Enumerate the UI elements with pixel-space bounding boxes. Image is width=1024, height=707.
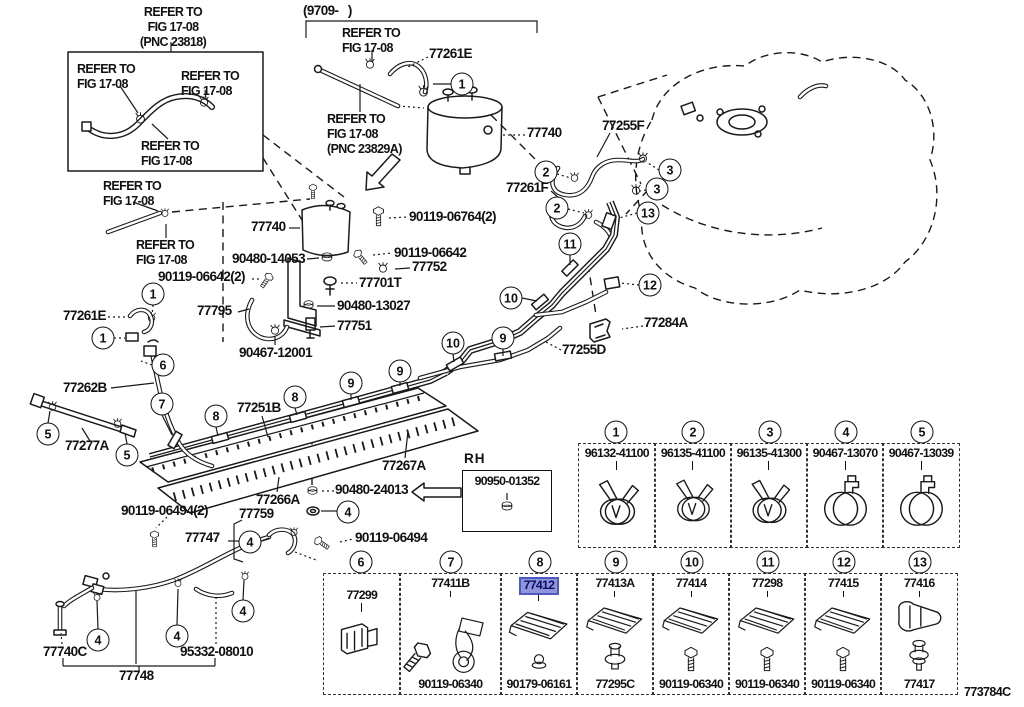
leader [361, 603, 362, 612]
legend-num-11[interactable]: 11 [757, 551, 780, 574]
part-number[interactable]: 77414 [676, 577, 707, 591]
legend-num-9[interactable]: 9 [605, 551, 628, 574]
legend-num-3[interactable]: 3 [759, 421, 782, 444]
legend-table-row1: 96132-41100 96135-41100 96135-41300 9046… [578, 443, 960, 548]
note-refer-5: REFER TO FIG 17-08 [136, 238, 194, 268]
part-label-77251b[interactable]: 77251B [237, 401, 281, 415]
part-number[interactable]: 90119-06340 [811, 678, 875, 692]
part-label-77284a[interactable]: 77284A [644, 316, 688, 330]
part-number[interactable]: 77299 [346, 589, 377, 603]
nut-icon [530, 647, 548, 679]
bracket-arm-icon [429, 610, 495, 678]
callout-13[interactable]: 13 [637, 202, 660, 225]
part-label-77262b[interactable]: 77262B [63, 381, 107, 395]
pipe-clamp-icon [809, 597, 877, 641]
part-label-90480-14053[interactable]: 90480-14053 [232, 252, 305, 266]
part-label-77740-mid[interactable]: 77740 [251, 220, 286, 234]
part-label-90119-06642[interactable]: 90119-06642 [394, 246, 466, 260]
part-number[interactable]: 77298 [752, 577, 783, 591]
callout-8[interactable]: 8 [205, 405, 228, 428]
part-number-highlighted[interactable]: 77412 [519, 577, 560, 595]
legend-cell-1[interactable]: 96132-41100 [578, 443, 656, 548]
part-label-95332-08010[interactable]: 95332-08010 [180, 645, 253, 659]
part-label-77748[interactable]: 77748 [119, 669, 154, 683]
bolt-icon [683, 641, 699, 679]
leader [845, 461, 846, 470]
part-label-77267a[interactable]: 77267A [382, 459, 426, 473]
legend-cell-2[interactable]: 96135-41100 [654, 443, 732, 548]
part-number[interactable]: 77416 [904, 577, 935, 591]
part-label-77747[interactable]: 77747 [185, 531, 220, 545]
fuel-tank-outline [636, 53, 937, 304]
part-number[interactable]: 77411B [431, 577, 469, 591]
part-number[interactable]: 77413A [596, 577, 635, 591]
callout-4[interactable]: 4 [87, 629, 110, 652]
legend-cell-8[interactable]: 77412 90179-06161 [500, 573, 578, 695]
callout-9[interactable]: 9 [389, 360, 412, 383]
legend-num-10[interactable]: 10 [681, 551, 704, 574]
pipe-clamp-icon [733, 597, 801, 641]
rh-label: RH [464, 452, 486, 466]
check-valve-icon [906, 637, 932, 679]
note-refer-pnc23829a: REFER TO FIG 17-08 (PNC 23829A) [327, 112, 402, 156]
part-label-77752[interactable]: 77752 [412, 260, 447, 274]
callout-1[interactable]: 1 [92, 327, 115, 350]
legend-cell-5[interactable]: 90467-13039 [882, 443, 960, 548]
callout-4[interactable]: 4 [232, 600, 255, 623]
legend-cell-3[interactable]: 96135-41300 [730, 443, 808, 548]
part-number[interactable]: 77417 [904, 678, 935, 692]
tank-hoses [551, 133, 647, 240]
note-refer-4: REFER TO FIG 17-08 [103, 179, 161, 209]
part-number[interactable]: 77415 [828, 577, 859, 591]
part-label-90480-24013[interactable]: 90480-24013 [335, 483, 408, 497]
callout-12[interactable]: 12 [639, 274, 662, 297]
legend-num-8[interactable]: 8 [529, 551, 552, 574]
legend-table-row2: 77299 77411B 90119-06340 77412 90179-061… [323, 573, 958, 695]
model-range-bracket [306, 21, 537, 38]
callout-2[interactable]: 2 [546, 197, 569, 220]
pipe-clamp-icon [581, 597, 649, 641]
part-label-77255d[interactable]: 77255D [562, 343, 606, 357]
figure-code: 773784C [964, 686, 1011, 699]
leader [616, 461, 617, 470]
part-label-77266a[interactable]: 77266A [256, 493, 300, 507]
legend-num-7[interactable]: 7 [440, 551, 463, 574]
note-refer-2: REFER TO FIG 17-08 [181, 69, 239, 99]
band-clamp-icon [816, 470, 874, 532]
callout-9[interactable]: 9 [340, 372, 363, 395]
callout-11[interactable]: 11 [559, 233, 582, 256]
note-refer-6: REFER TO FIG 17-08 [342, 26, 400, 56]
legend-cell-6[interactable]: 77299 [323, 573, 401, 695]
spring-clamp-icon [666, 470, 720, 530]
part-label-77277a[interactable]: 77277A [65, 439, 109, 453]
part-label-77759[interactable]: 77759 [239, 507, 274, 521]
legend-cell-11[interactable]: 77298 90119-06340 [728, 573, 806, 695]
callout-1[interactable]: 1 [451, 73, 474, 96]
part-number[interactable]: 96135-41300 [737, 447, 802, 461]
leader [692, 461, 693, 470]
callout-6[interactable]: 6 [152, 354, 175, 377]
bolt-icon [835, 641, 851, 679]
legend-num-1[interactable]: 1 [605, 421, 628, 444]
callout-2[interactable]: 2 [535, 161, 558, 184]
callout-8[interactable]: 8 [284, 386, 307, 409]
legend-num-6[interactable]: 6 [350, 551, 373, 574]
pointer-arrow [366, 154, 400, 190]
rh-detail-box: 90950-01352 [462, 470, 552, 532]
part-number[interactable]: 90119-06340 [418, 678, 482, 692]
cover-clamp-icon [889, 597, 949, 637]
grommet-pin-icon [602, 641, 628, 679]
part-label-77261e-top[interactable]: 77261E [429, 47, 472, 61]
note-refer-3: REFER TO FIG 17-08 [141, 139, 199, 169]
callout-10[interactable]: 10 [500, 287, 523, 310]
part-label-77795[interactable]: 77795 [197, 304, 232, 318]
callout-3[interactable]: 3 [646, 178, 669, 201]
legend-cell-9[interactable]: 77413A 77295C [576, 573, 654, 695]
part-label-77701t[interactable]: 77701T [359, 276, 401, 290]
legend-num-2[interactable]: 2 [682, 421, 705, 444]
spring-clamp-icon [588, 470, 646, 534]
part-label-90950-01352[interactable]: 90950-01352 [463, 475, 551, 489]
legend-cell-10[interactable]: 77414 90119-06340 [652, 573, 730, 695]
callout-4[interactable]: 4 [337, 501, 360, 524]
legend-cell-13[interactable]: 77416 77417 [880, 573, 958, 695]
part-label-77751[interactable]: 77751 [337, 319, 372, 333]
leader [768, 461, 769, 470]
part-label-90467-12001[interactable]: 90467-12001 [239, 346, 312, 360]
callout-1[interactable]: 1 [142, 283, 165, 306]
legend-cell-7[interactable]: 77411B 90119-06340 [399, 573, 502, 695]
callout-9[interactable]: 9 [492, 327, 515, 350]
callout-4[interactable]: 4 [166, 625, 189, 648]
note-model-range: (9709- ) [303, 4, 352, 18]
legend-cell-12[interactable]: 77415 90119-06340 [804, 573, 882, 695]
part-label-90119-06764[interactable]: 90119-06764(2) [409, 210, 496, 224]
legend-num-5[interactable]: 5 [911, 421, 934, 444]
part-number[interactable]: 90467-13070 [813, 447, 878, 461]
part-number[interactable]: 90467-13039 [889, 447, 954, 461]
part-label-90119-06642-2[interactable]: 90119-06642(2) [158, 270, 245, 284]
callout-4[interactable]: 4 [239, 531, 262, 554]
part-label-77740c[interactable]: 77740C [43, 645, 87, 659]
legend-cell-4[interactable]: 90467-13070 [806, 443, 884, 548]
part-number[interactable]: 96132-41100 [585, 447, 649, 461]
part-number[interactable]: 90119-06340 [659, 678, 723, 692]
part-number[interactable]: 90179-06161 [507, 678, 572, 692]
part-number[interactable]: 96135-41100 [661, 447, 725, 461]
pipe-clamp-icon [505, 601, 573, 647]
part-label-77261e-left[interactable]: 77261E [63, 309, 106, 323]
legend-num-12[interactable]: 12 [833, 551, 856, 574]
part-label-90480-13027[interactable]: 90480-13027 [337, 299, 410, 313]
part-label-77255f[interactable]: 77255F [602, 119, 644, 133]
part-number[interactable]: 90119-06340 [735, 678, 799, 692]
leader [921, 461, 922, 470]
part-label-77740-top[interactable]: 77740 [527, 126, 562, 140]
parts-diagram-page: REFER TO FIG 17-08 (PNC 23818) REFER TO … [0, 0, 1024, 707]
callout-5[interactable]: 5 [116, 444, 139, 467]
callout-10[interactable]: 10 [442, 332, 465, 355]
tube-clip-icon [334, 612, 390, 662]
callout-7[interactable]: 7 [151, 393, 174, 416]
callout-5[interactable]: 5 [37, 423, 60, 446]
legend-num-13[interactable]: 13 [909, 551, 932, 574]
legend-num-4[interactable]: 4 [835, 421, 858, 444]
bolt-icon [759, 641, 775, 679]
note-refer-pnc23818: REFER TO FIG 17-08 (PNC 23818) [108, 5, 238, 49]
part-label-90119-06494-2[interactable]: 90119-06494(2) [121, 504, 208, 518]
part-label-90119-06494[interactable]: 90119-06494 [355, 531, 427, 545]
pipe-bracket-77284a [590, 319, 610, 342]
part-number[interactable]: 77295C [596, 678, 635, 692]
note-refer-1: REFER TO FIG 17-08 [77, 62, 135, 92]
pipe-clamp-icon [657, 597, 725, 641]
spring-clamp-icon [741, 470, 797, 532]
band-clamp-icon [892, 470, 950, 532]
